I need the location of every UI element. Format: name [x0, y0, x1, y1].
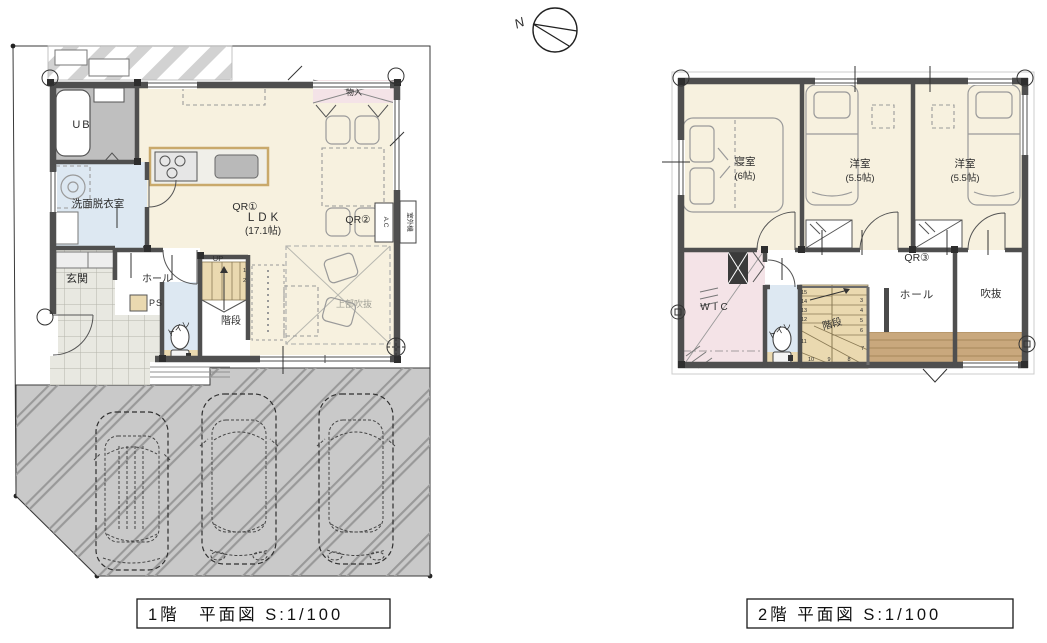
stair2f-num: 5	[860, 318, 863, 324]
stair2f-num: 4	[860, 308, 863, 314]
label-stairs1f: 階段	[221, 314, 241, 327]
caption-floor2: 2階 平面図 S:1/100	[747, 599, 1013, 628]
bottom-notch	[923, 369, 947, 382]
deck-strips	[868, 332, 1028, 365]
north-label: N	[512, 14, 527, 32]
closet-1	[806, 220, 852, 248]
label-hall2f: ホール	[900, 289, 935, 301]
floor2-plan: 寝室 (6帖) 洋室 (5.5帖) 洋室 (5.5帖) QR③ WIC トイレ …	[662, 66, 1035, 382]
label-bedroom-size: (6帖)	[734, 170, 755, 182]
stair2f-num: 9	[827, 357, 830, 363]
floor1-plan: UB 洗面脱衣室 玄関 ホール PS トイレ 階段 UP 1 2 QR① LDK…	[37, 46, 416, 385]
label-ac: A.C	[382, 217, 389, 228]
closet-2	[915, 220, 962, 248]
stair2f-num: 3	[860, 298, 863, 304]
stair1f-num-1: 1	[243, 268, 246, 274]
label-storage: 物入	[346, 87, 362, 97]
shoe-cabinet	[56, 252, 114, 268]
stair2f-num: 10	[808, 357, 814, 363]
stair2f-num: 13	[801, 308, 807, 314]
stair2f-num: 14	[801, 299, 807, 305]
label-hall1f: ホール	[142, 273, 172, 285]
label-washroom: 洗面脱衣室	[72, 197, 125, 210]
caption-floor1: 1階 平面図 S:1/100	[137, 599, 390, 628]
stair2f-num: 7	[861, 346, 864, 352]
stair1f-num-2: 2	[243, 278, 246, 284]
stair2f-num: 15	[801, 290, 807, 296]
caption-floor1-text: 1階 平面図 S:1/100	[148, 605, 343, 624]
sink	[215, 155, 258, 178]
floorplan-sheet: UB 洗面脱衣室 玄関 ホール PS トイレ 階段 UP 1 2 QR① LDK…	[0, 0, 1047, 643]
stair2f-num: 8	[847, 357, 850, 363]
label-void2f: 吹抜	[981, 287, 1002, 300]
label-ps: PS	[149, 298, 163, 308]
label-qr3: QR③	[904, 252, 929, 264]
caption-floor2-text: 2階 平面図 S:1/100	[758, 605, 941, 624]
label-entrance: 玄関	[66, 271, 88, 285]
label-wic: WIC	[700, 302, 731, 313]
label-bedroom: 寝室	[735, 155, 756, 168]
label-ldk: LDK	[248, 212, 282, 224]
stair2f-num: 11	[801, 339, 807, 345]
north-arrow: N	[512, 8, 577, 52]
label-ub: UB	[72, 119, 91, 131]
label-ldk-size: (17.1帖)	[245, 224, 281, 237]
label-western2-size: (5.5帖)	[950, 172, 979, 184]
label-up: UP	[213, 254, 223, 263]
label-qr2: QR②	[345, 214, 370, 226]
floorplan-drawing: UB 洗面脱衣室 玄関 ホール PS トイレ 階段 UP 1 2 QR① LDK…	[0, 0, 1047, 643]
label-western1: 洋室	[850, 157, 871, 170]
handrail	[884, 288, 889, 332]
eaves-hatch	[48, 46, 232, 80]
label-void-above: 上部吹抜	[336, 298, 372, 309]
parking-area	[16, 368, 430, 576]
pipe-shaft	[130, 295, 147, 311]
label-western1-size: (5.5帖)	[845, 172, 874, 184]
label-western2: 洋室	[955, 157, 976, 170]
label-outdoor-unit: 室外機	[406, 212, 415, 232]
stair2f-num: 6	[860, 328, 863, 334]
stair2f-num: 12	[801, 317, 807, 323]
kitchen-counter	[150, 148, 268, 185]
